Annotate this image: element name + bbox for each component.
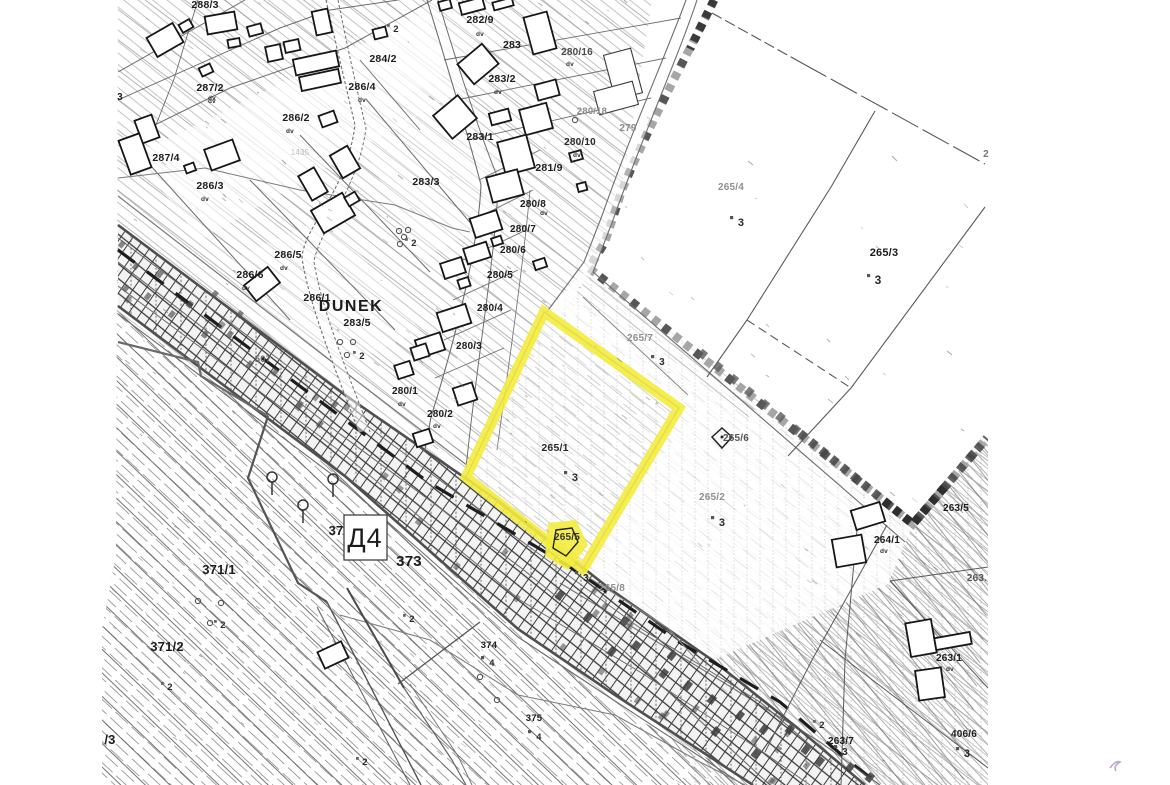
svg-text:374: 374 bbox=[481, 640, 498, 651]
svg-text:265/5: 265/5 bbox=[554, 532, 580, 543]
svg-text:287/2: 287/2 bbox=[196, 82, 223, 94]
svg-text:286/2: 286/2 bbox=[282, 112, 309, 124]
svg-text:dv: dv bbox=[398, 401, 406, 408]
svg-text:2: 2 bbox=[409, 614, 414, 625]
svg-text:dv: dv bbox=[566, 61, 574, 68]
svg-text:dv: dv bbox=[242, 285, 250, 292]
svg-text:264/1: 264/1 bbox=[874, 535, 900, 546]
svg-text:280/5: 280/5 bbox=[487, 270, 513, 281]
svg-text:280/10: 280/10 bbox=[564, 137, 596, 148]
svg-text:4: 4 bbox=[489, 658, 494, 668]
svg-text:dv: dv bbox=[476, 31, 484, 38]
svg-text:280/7: 280/7 bbox=[510, 224, 536, 235]
svg-text:2: 2 bbox=[983, 149, 989, 160]
svg-text:283/5: 283/5 bbox=[343, 317, 370, 329]
svg-text:263/7: 263/7 bbox=[828, 736, 854, 747]
svg-text:280/16: 280/16 bbox=[561, 47, 593, 58]
svg-text:286/3: 286/3 bbox=[196, 180, 223, 192]
svg-text:507: 507 bbox=[255, 354, 271, 365]
svg-text:3: 3 bbox=[842, 747, 848, 758]
svg-text:375: 375 bbox=[526, 713, 543, 724]
svg-text:265/8: 265/8 bbox=[599, 583, 625, 594]
svg-text:280/2: 280/2 bbox=[427, 409, 453, 420]
svg-text:3: 3 bbox=[719, 517, 725, 529]
svg-text:dv: dv bbox=[286, 128, 294, 135]
svg-text:263/5: 263/5 bbox=[943, 503, 969, 514]
svg-text:281/9: 281/9 bbox=[535, 162, 562, 174]
svg-text:371/2: 371/2 bbox=[150, 639, 184, 654]
svg-text:dv: dv bbox=[433, 423, 441, 430]
svg-text:/3: /3 bbox=[104, 732, 115, 747]
svg-text:282/9: 282/9 bbox=[466, 14, 493, 26]
svg-text:265/3: 265/3 bbox=[870, 247, 899, 259]
svg-text:1435: 1435 bbox=[291, 148, 310, 157]
svg-text:2: 2 bbox=[220, 620, 225, 631]
svg-text:283/2: 283/2 bbox=[488, 73, 515, 85]
svg-text:3: 3 bbox=[572, 472, 578, 484]
svg-text:406/6: 406/6 bbox=[951, 729, 977, 740]
svg-text:3: 3 bbox=[875, 273, 882, 287]
svg-text:dv: dv bbox=[880, 548, 888, 555]
svg-text:371/1: 371/1 bbox=[202, 562, 236, 577]
svg-text:dv: dv bbox=[358, 97, 366, 104]
svg-text:3: 3 bbox=[117, 92, 123, 103]
svg-text:280/18: 280/18 bbox=[577, 106, 607, 117]
svg-text:2: 2 bbox=[411, 238, 416, 249]
svg-text:280/6: 280/6 bbox=[500, 245, 526, 256]
svg-text:286/5: 286/5 bbox=[274, 249, 301, 261]
svg-text:265/7: 265/7 bbox=[627, 333, 653, 344]
svg-text:283/1: 283/1 bbox=[466, 131, 493, 143]
svg-text:283: 283 bbox=[503, 39, 521, 51]
svg-text:3: 3 bbox=[583, 573, 589, 584]
svg-text:265/2: 265/2 bbox=[699, 492, 725, 503]
svg-text:3: 3 bbox=[659, 357, 665, 368]
svg-text:286/4: 286/4 bbox=[348, 81, 375, 93]
svg-text:2: 2 bbox=[359, 351, 364, 362]
svg-text:2: 2 bbox=[167, 682, 172, 693]
svg-text:373: 373 bbox=[396, 553, 422, 570]
svg-text:3: 3 bbox=[964, 748, 970, 760]
svg-text:dv: dv bbox=[280, 265, 288, 272]
svg-text:280/4: 280/4 bbox=[477, 303, 503, 314]
svg-text:265/1: 265/1 bbox=[541, 442, 568, 454]
svg-text:2: 2 bbox=[362, 757, 367, 768]
svg-text:279: 279 bbox=[619, 123, 637, 134]
svg-text:dv: dv bbox=[201, 196, 209, 203]
svg-text:3: 3 bbox=[738, 217, 744, 229]
svg-text:280/1: 280/1 bbox=[392, 386, 418, 397]
svg-text:dv: dv bbox=[573, 152, 581, 159]
svg-text:284/2: 284/2 bbox=[369, 53, 396, 65]
svg-text:265/4: 265/4 bbox=[718, 182, 744, 193]
svg-text:288/3: 288/3 bbox=[191, 0, 218, 11]
svg-text:37: 37 bbox=[329, 523, 344, 538]
svg-text:4: 4 bbox=[536, 732, 541, 742]
svg-text:283/3: 283/3 bbox=[412, 176, 439, 188]
svg-text:286/6: 286/6 bbox=[236, 269, 263, 281]
svg-text:280/3: 280/3 bbox=[456, 341, 482, 352]
svg-text:263/1: 263/1 bbox=[936, 653, 962, 664]
svg-text:dv: dv bbox=[540, 210, 548, 217]
svg-text:280/8: 280/8 bbox=[520, 199, 546, 210]
svg-text:dv: dv bbox=[208, 95, 216, 102]
svg-text:2: 2 bbox=[393, 24, 398, 35]
svg-text:2: 2 bbox=[819, 720, 824, 731]
svg-text:dv: dv bbox=[494, 89, 502, 96]
svg-text:287/4: 287/4 bbox=[152, 152, 179, 164]
svg-text:263.: 263. bbox=[967, 573, 987, 584]
svg-text:Д4: Д4 bbox=[347, 523, 382, 553]
svg-text:DUNEK: DUNEK bbox=[319, 298, 383, 315]
svg-text:265/6: 265/6 bbox=[723, 433, 749, 444]
